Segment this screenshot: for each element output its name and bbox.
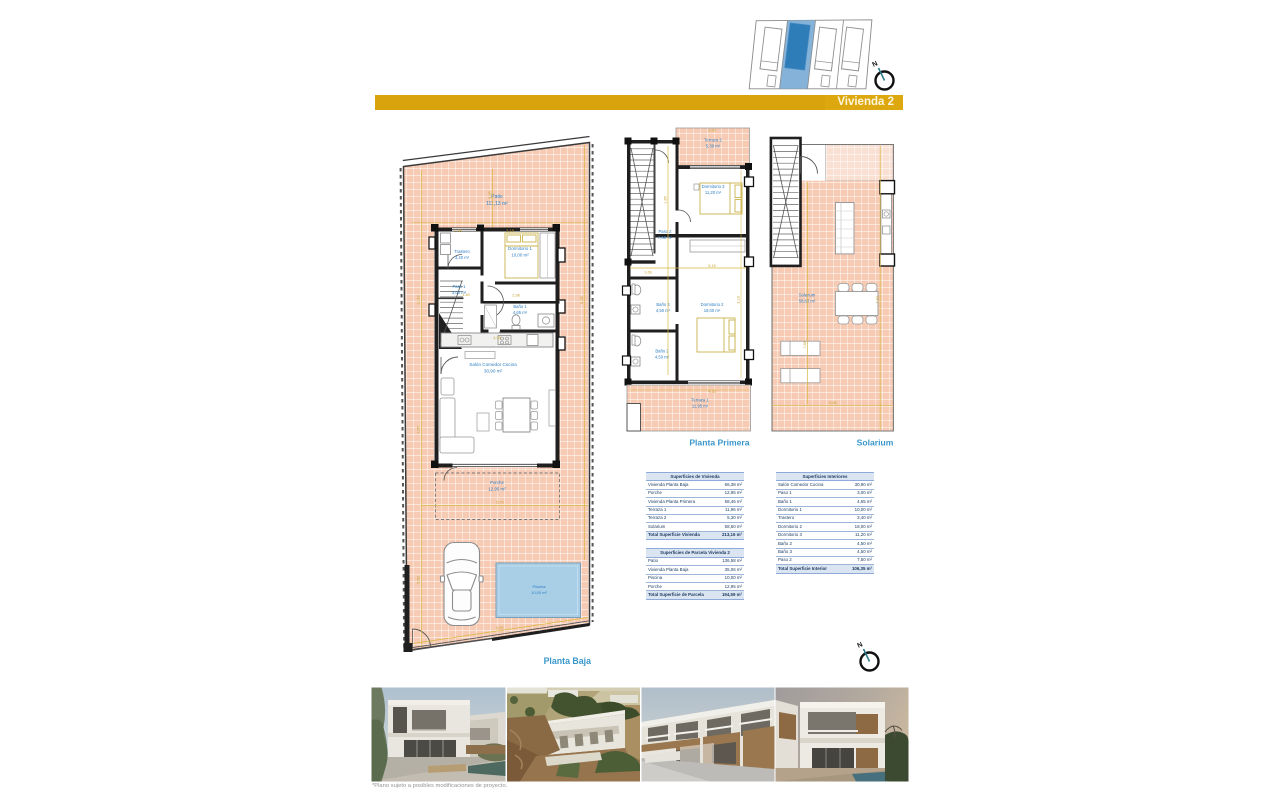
- svg-text:4,50 m²: 4,50 m²: [655, 355, 670, 360]
- svg-text:18,00 m²: 18,00 m²: [704, 308, 721, 313]
- svg-text:4,35: 4,35: [493, 336, 500, 340]
- svg-text:4,50 m²: 4,50 m²: [656, 308, 671, 313]
- svg-text:Terraza 2: Terraza 2: [704, 138, 722, 143]
- svg-text:7,50 m²: 7,50 m²: [658, 235, 673, 240]
- svg-text:1,80: 1,80: [462, 293, 469, 297]
- svg-text:Planta Baja: Planta Baja: [544, 656, 592, 666]
- svg-text:Baño 2: Baño 2: [655, 349, 669, 354]
- svg-text:Solarium: Solarium: [857, 438, 894, 448]
- svg-text:111,13 m²: 111,13 m²: [486, 201, 508, 207]
- svg-text:Dormitorio 2: Dormitorio 2: [701, 302, 724, 307]
- svg-text:Paso 2: Paso 2: [658, 229, 672, 234]
- svg-text:7,30: 7,30: [876, 296, 880, 303]
- svg-text:3,18: 3,18: [506, 229, 513, 233]
- svg-text:Dormitorio 3: Dormitorio 3: [702, 184, 725, 189]
- svg-text:4,65 m²: 4,65 m²: [513, 310, 528, 315]
- svg-text:Salón Comedor Cocina: Salón Comedor Cocina: [469, 362, 517, 367]
- svg-text:10,00 m²: 10,00 m²: [511, 253, 529, 258]
- svg-text:5,85: 5,85: [829, 401, 836, 405]
- svg-text:5,50: 5,50: [417, 576, 421, 583]
- svg-text:Planta Primera: Planta Primera: [689, 438, 749, 448]
- svg-text:Porche: Porche: [490, 480, 504, 485]
- svg-text:7,85: 7,85: [803, 341, 807, 348]
- svg-text:4,33: 4,33: [708, 390, 715, 394]
- svg-text:30,90 m²: 30,90 m²: [484, 369, 503, 374]
- svg-text:11,43: 11,43: [417, 295, 421, 304]
- svg-text:1,85: 1,85: [664, 196, 668, 203]
- svg-text:Paso 1: Paso 1: [452, 284, 466, 289]
- svg-text:3,18: 3,18: [737, 296, 741, 303]
- svg-text:2,98: 2,98: [512, 294, 519, 298]
- svg-text:10,00 m²: 10,00 m²: [531, 590, 547, 595]
- svg-text:12,95 m²: 12,95 m²: [488, 487, 506, 492]
- svg-text:N: N: [871, 60, 879, 68]
- svg-text:5,16: 5,16: [708, 264, 715, 268]
- svg-text:3,40 m²: 3,40 m²: [455, 255, 470, 260]
- svg-text:Baño 1: Baño 1: [513, 304, 527, 309]
- svg-text:8,35: 8,35: [488, 191, 492, 198]
- svg-text:Patio: Patio: [491, 194, 503, 200]
- svg-text:11,20 m²: 11,20 m²: [705, 190, 722, 195]
- svg-text:8,35: 8,35: [580, 296, 584, 303]
- svg-text:7,05: 7,05: [417, 426, 421, 433]
- svg-text:11,95 m²: 11,95 m²: [692, 404, 709, 409]
- svg-text:2,35: 2,35: [454, 229, 461, 233]
- svg-text:3,65: 3,65: [708, 129, 715, 133]
- svg-text:Trastero: Trastero: [454, 249, 470, 254]
- svg-text:Dormitorio 1: Dormitorio 1: [508, 246, 532, 251]
- svg-text:1,66: 1,66: [644, 271, 651, 275]
- svg-text:5,30 m²: 5,30 m²: [706, 144, 721, 149]
- svg-text:Piscina: Piscina: [533, 584, 547, 589]
- svg-text:5,70: 5,70: [496, 501, 503, 505]
- svg-text:N: N: [856, 641, 864, 649]
- svg-text:Terraza 1: Terraza 1: [691, 398, 709, 403]
